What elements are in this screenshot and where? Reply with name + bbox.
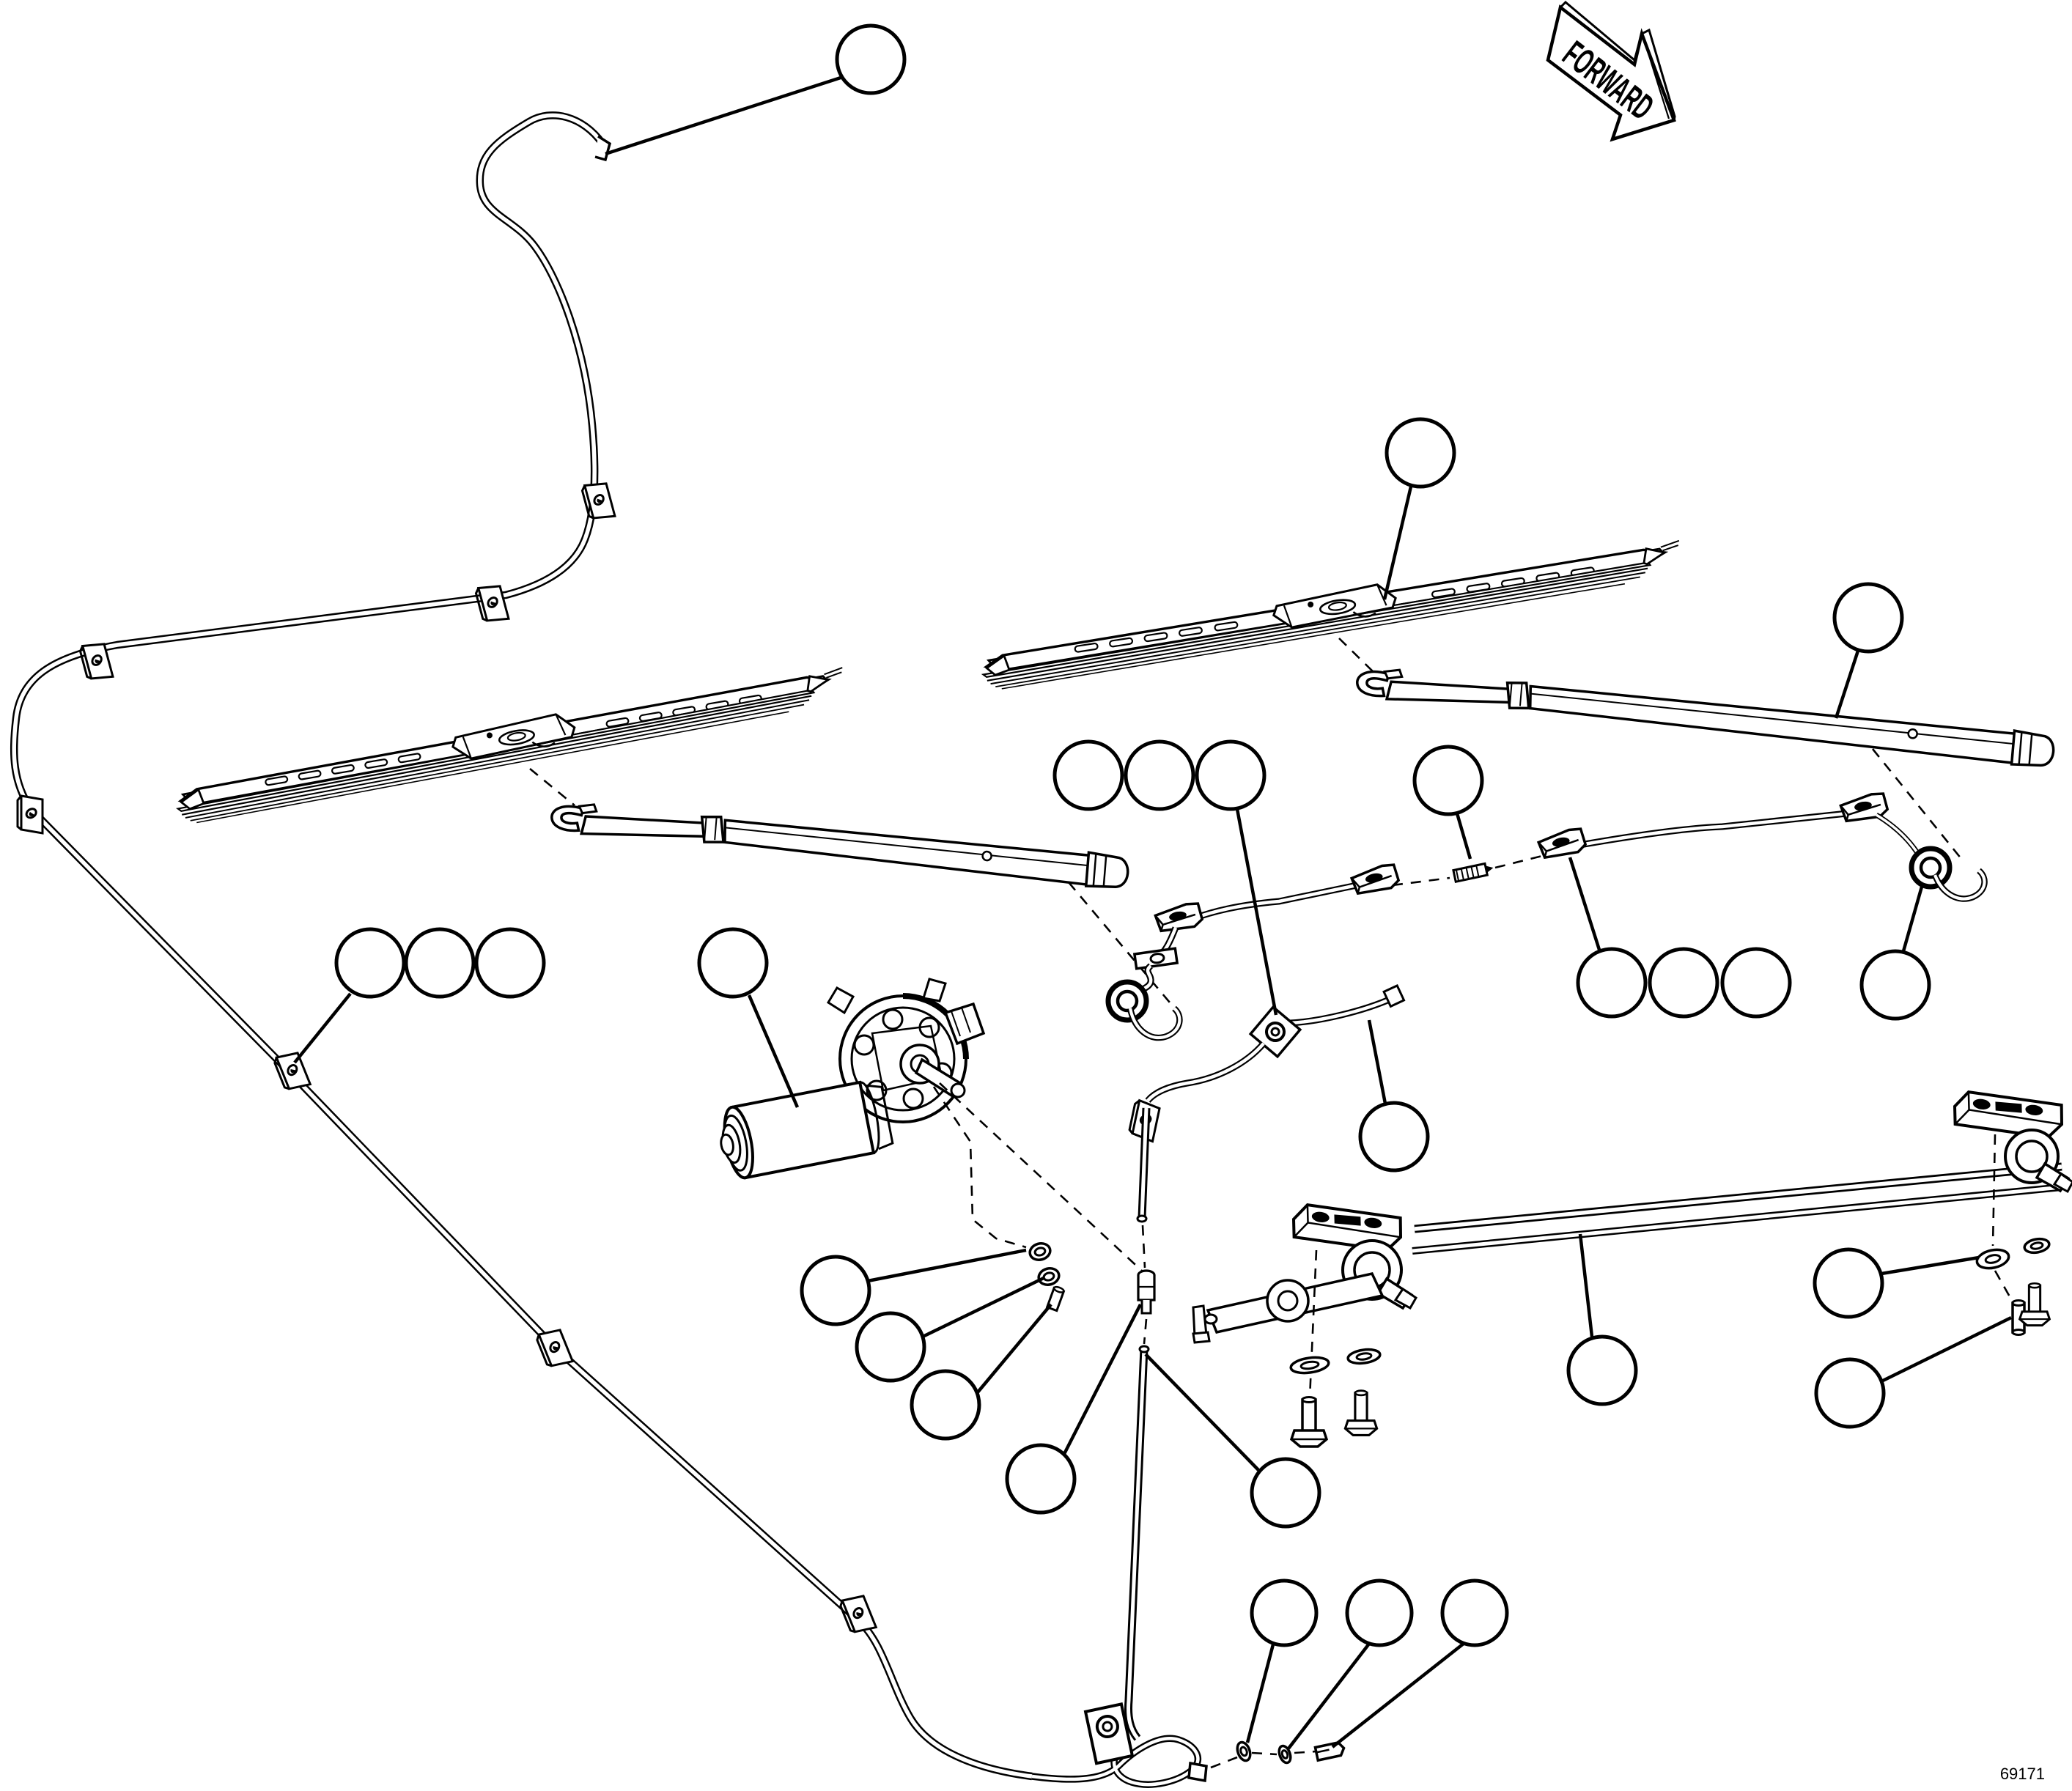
svg-text:69171: 69171 bbox=[2000, 1765, 2045, 1783]
